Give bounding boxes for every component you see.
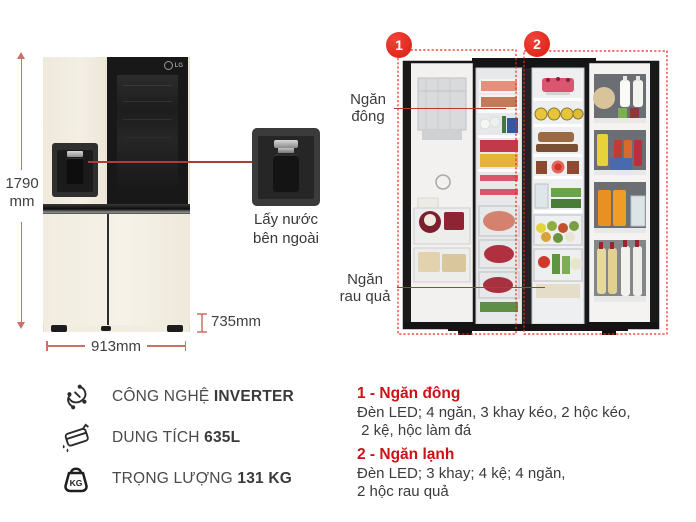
feature-weight: KG TRỌNG LƯỢNG 131 KG: [58, 461, 338, 497]
instaview-glass-panel: LG: [107, 57, 188, 207]
weight-icon: KG: [58, 462, 94, 496]
feature-value: 131 KG: [237, 470, 292, 487]
feature-label: DUNG TÍCH: [112, 429, 200, 446]
fridge-foot-right: [167, 325, 183, 332]
feature-label: TRỌNG LƯỢNG: [112, 470, 233, 487]
crisper-label: Ngăn rau quả: [336, 271, 394, 305]
lg-logo-text: LG: [175, 63, 183, 69]
freezer-label: Ngăn đông: [344, 91, 392, 125]
fridge-foot-mid: [101, 326, 111, 331]
fridge-foot-left: [51, 325, 67, 332]
height-arrow-bottom: [17, 322, 25, 329]
width-value: 913mm: [85, 338, 147, 355]
fridge-note: 2 - Ngăn lạnh Đèn LED; 3 khay; 4 kệ; 4 n…: [357, 445, 657, 500]
feature-list: CÔNG NGHỆ INVERTER DUNG TÍCH 635L: [58, 379, 338, 497]
note-line: Đèn LED; 3 khay; 4 kệ; 4 ngăn,: [357, 465, 657, 483]
inverter-icon: [58, 382, 94, 412]
product-infographic: 1790 mm LG L: [0, 0, 696, 522]
note-line: Đèn LED; 4 ngăn, 3 khay kéo, 2 hộc kéo,: [357, 404, 657, 422]
fridge-interior: [532, 68, 584, 324]
height-dim-line-bottom: [21, 222, 23, 322]
lg-logo-icon: [164, 61, 173, 70]
depth-dimension: 735mm: [211, 313, 261, 331]
height-dim-line-top: [21, 58, 23, 170]
instaview-window: [117, 75, 178, 191]
dispenser-callout-box: [252, 128, 320, 206]
fridge-region-badge: 2: [524, 31, 550, 57]
water-dispenser-icon: [274, 140, 298, 148]
freezer-pointer-line: [394, 108, 506, 109]
lg-logo: LG: [164, 61, 183, 70]
height-dimension: 1790 mm: [0, 175, 44, 211]
height-value: 1790: [0, 175, 44, 193]
note-title: 1 - Ngăn đông: [357, 384, 657, 403]
callout-caption: Lấy nước bên ngoài: [240, 210, 332, 248]
feature-inverter: CÔNG NGHỆ INVERTER: [58, 379, 338, 415]
freezer-note: 1 - Ngăn đông Đèn LED; 4 ngăn, 3 khay ké…: [357, 384, 657, 439]
water-dispenser: [52, 143, 98, 197]
fridge-lower-doors: [43, 214, 190, 325]
feature-label: CÔNG NGHỆ: [112, 388, 209, 405]
crisper-pointer-line: [397, 287, 545, 288]
open-fridge-image: [388, 46, 672, 338]
dispenser-callout-line: [88, 161, 252, 163]
freezer-interior: [476, 68, 522, 324]
freezer-region-badge: 1: [386, 32, 412, 58]
feature-value: INVERTER: [214, 388, 294, 405]
note-line: 2 hộc rau quả: [357, 483, 657, 501]
fridge-middle-band: [43, 204, 190, 214]
note-line: 2 kệ, hộc làm đá: [357, 422, 657, 440]
note-title: 2 - Ngăn lạnh: [357, 445, 657, 464]
depth-dim-marker: [196, 312, 208, 334]
compartment-notes: 1 - Ngăn đông Đèn LED; 4 ngăn, 3 khay ké…: [357, 384, 657, 506]
open-right-door: [588, 62, 658, 329]
weight-icon-text: KG: [70, 478, 83, 488]
capacity-icon: [58, 422, 94, 454]
fridge-front-image: LG: [43, 57, 190, 332]
width-dimension: 913mm: [46, 338, 186, 354]
feature-capacity: DUNG TÍCH 635L: [58, 420, 338, 456]
feature-value: 635L: [204, 429, 240, 446]
height-unit: mm: [0, 193, 44, 211]
open-left-door: [404, 62, 474, 329]
